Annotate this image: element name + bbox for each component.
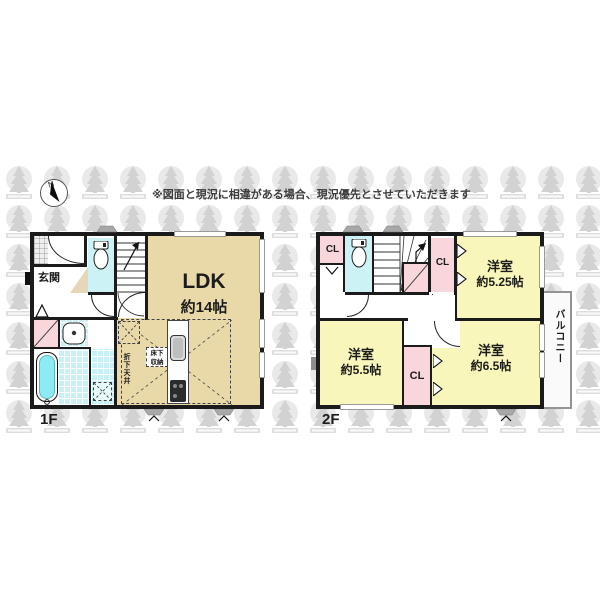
decor <box>17 190 21 193</box>
decor <box>36 305 48 317</box>
decor <box>578 235 600 237</box>
decor <box>149 416 159 421</box>
balcony: バルコニー <box>544 291 572 409</box>
closet-label: CL <box>326 244 339 255</box>
watermark-logo <box>266 280 304 319</box>
decor <box>502 430 524 432</box>
entrance-label: 玄関 <box>38 272 60 285</box>
decor <box>578 352 600 354</box>
bedroom-sw-label: 洋室 約5.5帖 <box>330 348 392 378</box>
watermark-logo <box>266 397 304 436</box>
ldk-size: 約14帖 <box>181 299 228 316</box>
entrance-door-marker <box>25 272 30 285</box>
dropped-ceiling-label: 折下天井 <box>121 353 131 385</box>
decor <box>549 229 553 232</box>
stove-burner <box>179 384 183 388</box>
toilet-door-arc-1f <box>91 295 114 317</box>
decor <box>17 229 21 232</box>
wall <box>320 318 408 321</box>
bath-faucet-icon <box>42 399 52 405</box>
watermark-logo <box>570 319 600 358</box>
watermark-logo <box>114 163 152 202</box>
window <box>464 232 516 236</box>
wall <box>320 263 345 265</box>
watermark-logo <box>266 319 304 358</box>
decor <box>570 241 600 280</box>
floorplan-page: N ※図面と現況に相違がある場合、現況優先とさせていただきます 玄関 <box>0 0 600 600</box>
floor-plan-1f: 玄関 LDK 約14帖 <box>30 232 264 409</box>
vent-icon <box>382 224 404 233</box>
decor <box>8 196 30 198</box>
decor <box>17 307 21 310</box>
decor <box>473 190 477 193</box>
decor <box>97 226 117 232</box>
wall <box>145 236 148 320</box>
decor <box>274 274 296 276</box>
decor <box>587 307 591 310</box>
decor <box>274 430 296 432</box>
decor <box>540 196 562 198</box>
decor <box>570 397 600 436</box>
entrance-door-arc <box>48 236 84 264</box>
wall <box>455 318 540 321</box>
decor <box>245 424 249 427</box>
decor <box>114 163 152 202</box>
decor <box>103 243 106 247</box>
closet-2f-center <box>404 264 428 292</box>
watermark-logo <box>570 163 600 202</box>
decor <box>84 430 106 432</box>
decor <box>0 163 38 202</box>
decor <box>283 307 287 310</box>
closet-2f-nw: CL <box>320 236 345 263</box>
balcony-label: バルコニー <box>551 309 566 364</box>
decor <box>511 424 515 427</box>
watermark-logo <box>570 358 600 397</box>
decor <box>131 190 135 193</box>
vent-icon <box>96 224 118 233</box>
decor <box>219 416 229 421</box>
watermark-logo <box>570 241 600 280</box>
watermark-logo <box>266 202 304 241</box>
wall <box>34 264 87 267</box>
decor <box>570 319 600 358</box>
accordion-door-icon <box>457 272 467 286</box>
watermark-logo <box>570 202 600 241</box>
decor <box>457 244 466 258</box>
decor <box>8 352 30 354</box>
decor <box>8 391 30 393</box>
decor <box>397 424 401 427</box>
decor <box>266 202 304 241</box>
decor <box>549 268 553 271</box>
window <box>540 247 544 287</box>
watermark-logo <box>266 358 304 397</box>
room-size: 約6.5帖 <box>471 359 512 373</box>
disclaimer-text: ※図面と現況に相違がある場合、現況優先とさせていただきます <box>152 186 471 202</box>
decor <box>464 430 486 432</box>
closet-label: CL <box>436 257 449 268</box>
decor <box>374 244 400 284</box>
wall <box>430 345 432 405</box>
floor-label-2f: 2F <box>322 411 340 428</box>
decor <box>587 424 591 427</box>
decor <box>266 280 304 319</box>
decor <box>578 430 600 432</box>
decor <box>350 430 372 432</box>
vent-icon <box>213 409 235 422</box>
decor <box>17 385 21 388</box>
decor <box>34 320 58 347</box>
window <box>175 232 225 236</box>
decor <box>8 430 30 432</box>
hall-triangle-marker <box>35 304 49 318</box>
decor <box>76 163 114 202</box>
decor <box>274 391 296 393</box>
decor <box>549 424 553 427</box>
accordion-door-icon <box>433 354 443 368</box>
decor <box>383 226 403 232</box>
toilet-door-arc-2f <box>347 295 369 317</box>
window <box>341 405 393 409</box>
x-mark <box>119 322 139 343</box>
decor <box>388 430 410 432</box>
watermark-logo <box>532 163 570 202</box>
decor <box>426 430 448 432</box>
decor <box>283 268 287 271</box>
bedroom-se-label: 洋室 約6.5帖 <box>454 344 528 374</box>
watermark-logo <box>266 241 304 280</box>
stove-burner <box>173 384 177 388</box>
decor <box>93 424 97 427</box>
compass-icon: N <box>38 175 70 209</box>
floor-plan-2f: CL CL <box>316 232 544 409</box>
decor <box>17 268 21 271</box>
decor <box>266 319 304 358</box>
watermark-logo <box>570 397 600 436</box>
closet-label: CL <box>410 370 425 382</box>
decor <box>435 424 439 427</box>
decor <box>236 430 258 432</box>
decor <box>8 235 30 237</box>
decor <box>404 264 428 292</box>
room-name: 洋室 <box>478 343 504 358</box>
room-size: 約5.5帖 <box>341 363 382 377</box>
closet-2f-ne: CL <box>431 238 454 292</box>
decor <box>361 241 364 245</box>
decor <box>578 274 600 276</box>
x-mark <box>94 383 111 400</box>
decor <box>45 400 50 405</box>
decor <box>570 358 600 397</box>
decor <box>274 352 296 354</box>
decor <box>93 190 97 193</box>
bathroom-floor <box>58 349 89 405</box>
watermark-logo <box>0 163 38 202</box>
decor <box>473 424 477 427</box>
room-name: 洋室 <box>487 259 513 274</box>
decor <box>457 272 466 286</box>
watermark-logo <box>76 163 114 202</box>
entrance-step <box>70 267 88 293</box>
kitchen-stove <box>170 380 186 402</box>
decor <box>549 190 553 193</box>
diagonal-line <box>404 264 428 292</box>
vent-icon <box>311 357 316 370</box>
vent-icon <box>495 409 517 422</box>
vent-icon <box>143 409 165 422</box>
decor <box>214 409 234 415</box>
decor <box>84 196 106 198</box>
decor <box>587 190 591 193</box>
toilet-icon-1f <box>92 241 110 271</box>
vent-icon <box>342 224 364 233</box>
bedroom-ne-label: 洋室 約5.25帖 <box>468 260 532 290</box>
decor <box>587 346 591 349</box>
decor <box>274 313 296 315</box>
ldk-name: LDK <box>182 270 225 293</box>
decor <box>359 424 363 427</box>
watermark-logo <box>570 280 600 319</box>
underfloor-storage-line1: 床下 <box>151 350 164 357</box>
decor <box>131 424 135 427</box>
hall-2f <box>430 295 455 320</box>
decor <box>17 424 21 427</box>
decor <box>312 430 334 432</box>
decor <box>266 358 304 397</box>
entrance-porch-tile <box>34 236 48 264</box>
diagonal-line <box>34 320 58 347</box>
toilet-icon-2f <box>350 239 368 269</box>
watermark-logo <box>494 163 532 202</box>
room-size: 約5.25帖 <box>476 275 523 289</box>
decor <box>578 391 600 393</box>
decor <box>8 313 30 315</box>
window <box>260 240 264 292</box>
decor <box>494 163 532 202</box>
decor <box>283 385 287 388</box>
decor <box>283 424 287 427</box>
decor <box>122 196 144 198</box>
laundry-space-box <box>93 382 112 401</box>
decor <box>266 241 304 280</box>
decor <box>532 163 570 202</box>
decor <box>283 346 287 349</box>
closet-2f-s: CL <box>404 347 430 405</box>
decor <box>570 163 600 202</box>
decor <box>587 385 591 388</box>
accordion-door-icon <box>433 382 443 396</box>
window <box>260 320 264 347</box>
decor <box>144 409 164 415</box>
washbasin-icon <box>62 322 86 345</box>
decor <box>587 229 591 232</box>
sink-basin <box>173 338 183 358</box>
room-name: 洋室 <box>348 347 374 362</box>
bathtub <box>36 352 58 402</box>
decor <box>496 409 516 415</box>
decor <box>122 430 144 432</box>
decor <box>117 243 145 292</box>
window <box>540 325 544 350</box>
accordion-door-icon <box>457 244 467 258</box>
decor <box>511 190 515 193</box>
decor <box>343 226 363 232</box>
decor <box>433 382 442 396</box>
decor <box>433 354 442 368</box>
decor <box>283 229 287 232</box>
decor <box>326 267 338 274</box>
decor <box>570 202 600 241</box>
wall <box>84 236 87 266</box>
decor <box>540 430 562 432</box>
underfloor-storage-box: 床下 収納 <box>146 347 168 367</box>
underfloor-storage-line2: 収納 <box>151 359 164 366</box>
window <box>540 353 544 377</box>
decor <box>501 416 511 421</box>
decor <box>578 196 600 198</box>
decor <box>94 249 108 269</box>
closet-1f <box>34 320 58 347</box>
decor <box>570 280 600 319</box>
decor <box>502 196 524 198</box>
decor <box>352 247 366 267</box>
decor <box>169 424 173 427</box>
decor <box>160 430 182 432</box>
decor <box>72 331 76 335</box>
decor <box>17 346 21 349</box>
decor <box>266 397 304 436</box>
ldk-label: LDK 約14帖 <box>162 270 246 318</box>
decor <box>587 268 591 271</box>
bathtub-water <box>39 355 55 399</box>
decor <box>198 430 220 432</box>
closet-fold-door-icon <box>325 266 339 275</box>
decor <box>207 424 211 427</box>
floor-label-1f: 1F <box>40 411 58 428</box>
stove-burner <box>173 394 177 398</box>
decor <box>46 430 68 432</box>
decor <box>578 313 600 315</box>
decor <box>274 235 296 237</box>
kitchen-sink <box>170 335 186 361</box>
kitchen-x-box <box>118 321 140 344</box>
window <box>260 353 264 377</box>
